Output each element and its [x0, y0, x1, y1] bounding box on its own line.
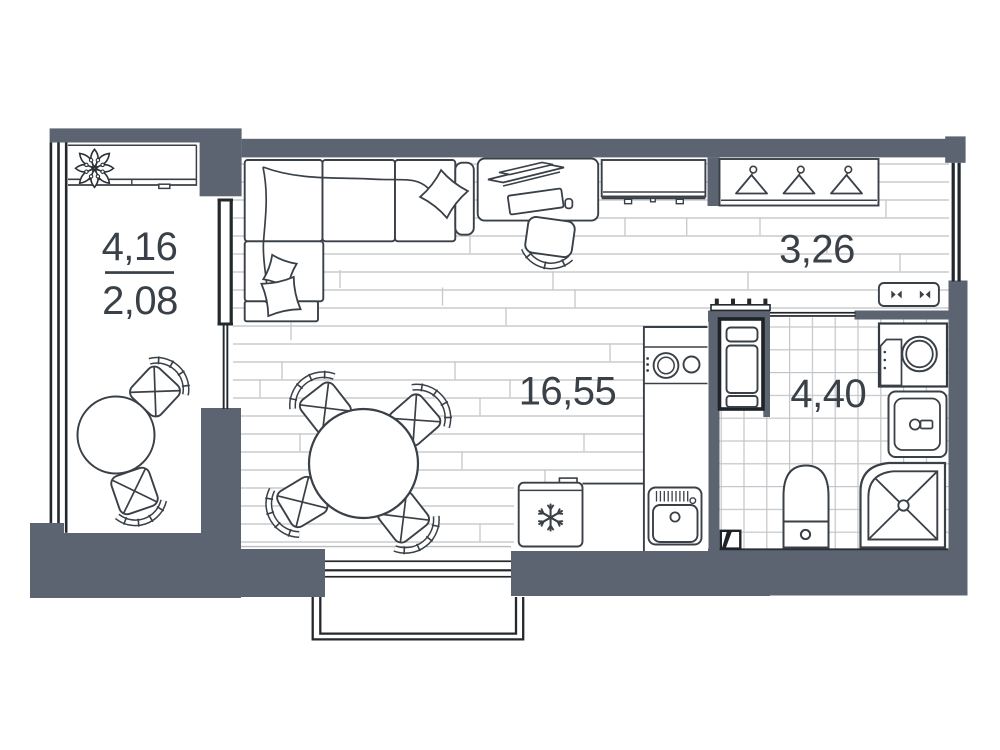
svg-text:2,08: 2,08 [102, 279, 178, 323]
svg-text:4,16: 4,16 [102, 225, 178, 269]
svg-text:4,40: 4,40 [790, 372, 866, 416]
svg-text:16,55: 16,55 [519, 370, 617, 414]
svg-text:3,26: 3,26 [779, 228, 855, 272]
